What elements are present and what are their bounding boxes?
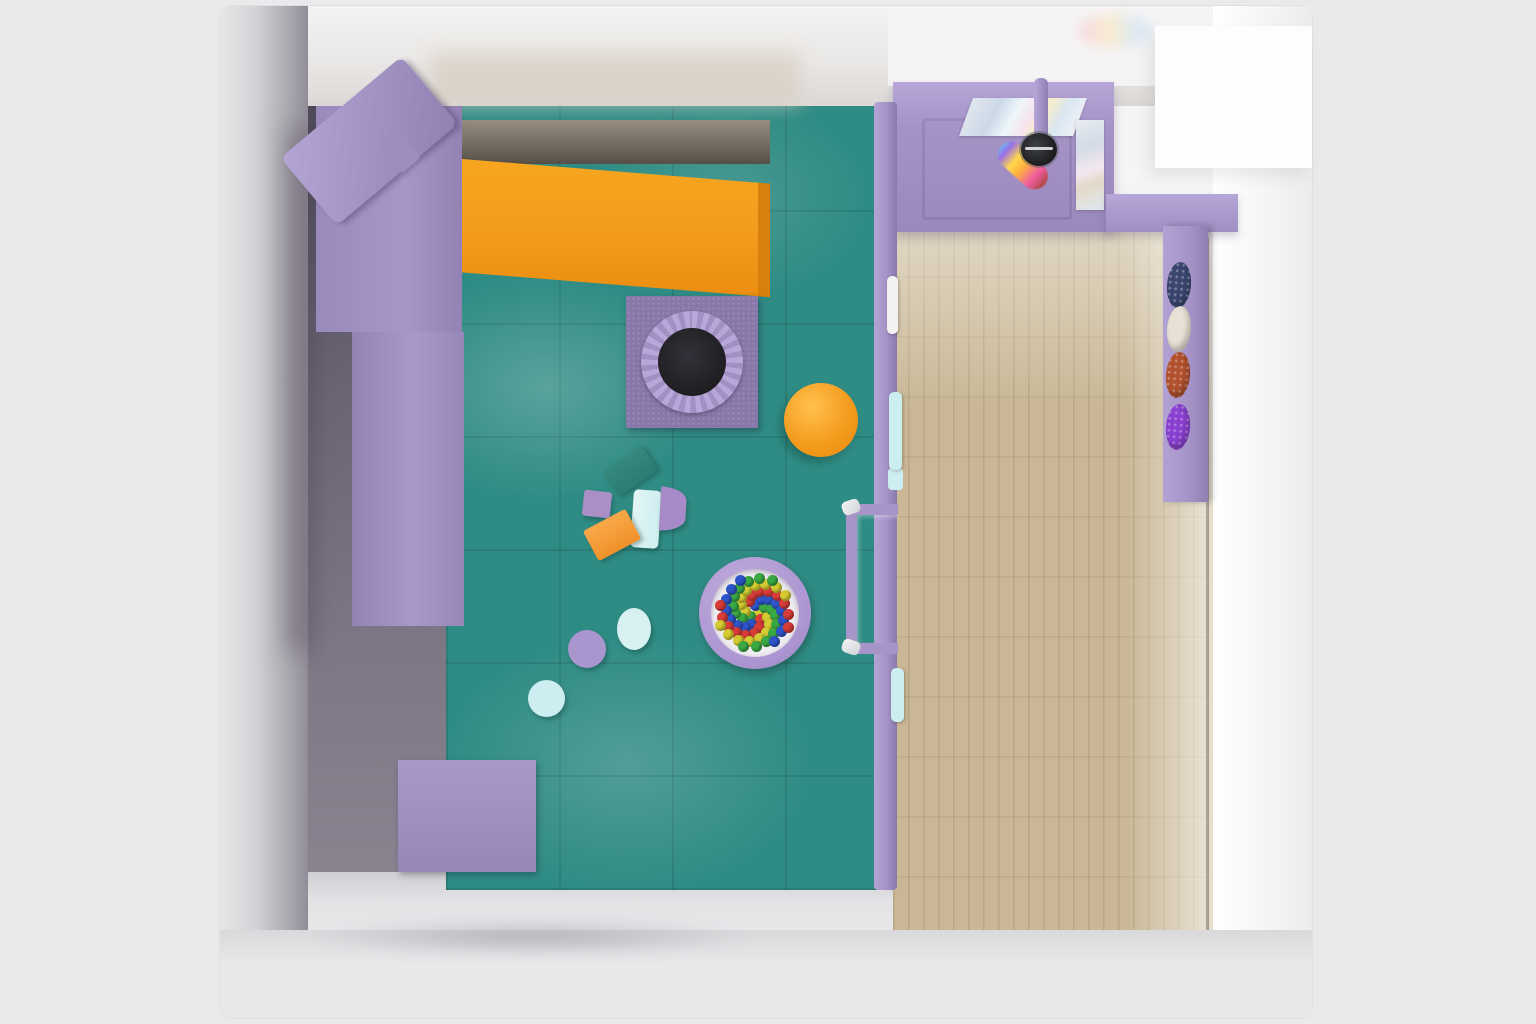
trampoline-mesh <box>658 328 726 396</box>
ball <box>726 584 737 595</box>
frame-post <box>753 58 764 432</box>
stepping-stone-purple <box>568 630 606 668</box>
frame-post <box>296 100 307 934</box>
ball <box>715 620 726 631</box>
trampoline <box>626 296 758 428</box>
white-safety-rail <box>380 845 1050 856</box>
frame-beam <box>296 616 448 626</box>
ball <box>783 609 794 620</box>
entry-cabinet <box>1155 26 1312 168</box>
frame-post <box>574 472 583 634</box>
frame-beam <box>296 250 448 260</box>
white-safety-rail <box>380 32 390 860</box>
frame-post <box>444 100 455 628</box>
orange-pouf <box>784 383 858 457</box>
frame-beam <box>296 762 542 772</box>
stepping-stone-blue <box>617 608 651 650</box>
divider-pad-blue <box>891 668 904 722</box>
frame-beam <box>514 732 738 741</box>
frame-beam <box>296 470 448 480</box>
iridescent-panel <box>959 98 1087 136</box>
ball-pit-balls <box>711 569 799 657</box>
ball-pit <box>699 557 811 669</box>
playground-top-view-render <box>0 0 1536 1024</box>
divider-pad-white <box>887 276 898 334</box>
ball <box>767 575 778 586</box>
frame-post <box>728 724 738 938</box>
ball <box>738 641 749 652</box>
ball <box>783 622 794 633</box>
guard-cap-blue <box>888 468 903 490</box>
ball <box>735 575 746 586</box>
white-safety-rail <box>438 680 447 858</box>
wall-warm-shadow <box>430 52 800 106</box>
ball <box>769 636 780 647</box>
white-safety-rail <box>318 680 498 689</box>
frame-beam <box>752 84 898 93</box>
rainbow-glare <box>1078 14 1152 48</box>
ball <box>780 590 791 601</box>
frame-beam <box>440 472 588 481</box>
divider-pad-blue <box>889 392 902 470</box>
ball <box>715 600 726 611</box>
foam-block-purple <box>582 490 613 519</box>
frame-beam <box>296 316 448 326</box>
play-area-divider-wall <box>874 102 897 890</box>
holographic-side-panel <box>1076 120 1104 210</box>
rainbow-projector-icon <box>1021 133 1057 166</box>
frame-post <box>676 58 686 192</box>
slide-platform-shadow <box>448 120 770 164</box>
stepping-stone-blue <box>528 680 565 717</box>
ball <box>723 629 734 640</box>
divider-guard-rail <box>846 504 898 654</box>
ball <box>751 641 762 652</box>
